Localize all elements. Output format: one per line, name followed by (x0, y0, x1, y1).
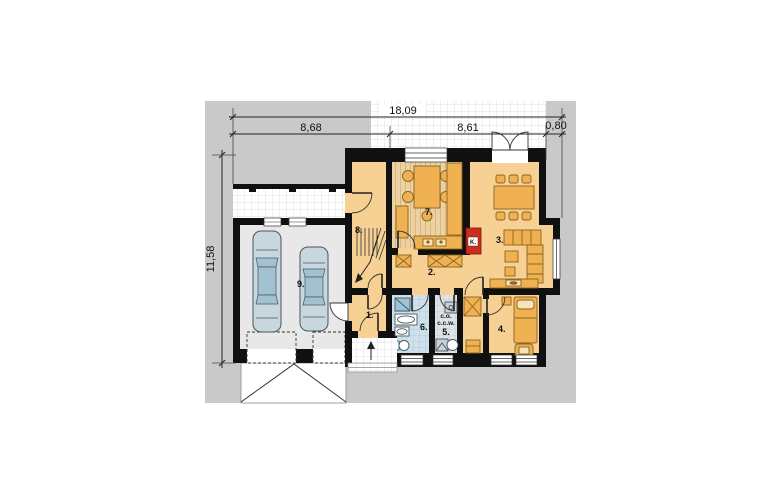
boiler-label-co: c.o. (440, 313, 451, 320)
terrace-post (249, 184, 256, 192)
bedroom-window (516, 355, 537, 365)
room-label-kitchen: 7. (425, 207, 433, 217)
dining-chair (496, 212, 505, 220)
terrace-post (289, 184, 296, 192)
dim-bay-section: 0,80 (545, 120, 566, 132)
room-label-hall: 1. (366, 310, 374, 320)
car (253, 231, 281, 332)
kitchen-furniture (396, 163, 462, 249)
room-label-bathroom: 6. (420, 322, 428, 332)
dining-table (494, 186, 534, 209)
fireplace-label: K. (470, 240, 476, 246)
dining-chair (522, 212, 531, 220)
driveway (241, 360, 346, 403)
toilet (399, 341, 409, 351)
coffee-table (505, 251, 518, 262)
pouf (505, 267, 515, 276)
room-label-stairs: 8. (355, 225, 363, 235)
room-label-living: 3. (496, 235, 504, 245)
room-label-boiler: 5. (442, 327, 450, 337)
dining-chair (509, 212, 518, 220)
floor-plan-svg: 9. (0, 0, 780, 503)
fireplace: K. (466, 228, 481, 254)
car (300, 247, 328, 331)
dining-chair (509, 175, 518, 183)
dim-side-height: 11,58 (205, 246, 217, 273)
boiler-label-ccw: c.c.w. (437, 320, 455, 327)
kitchen-counter-tall (447, 163, 462, 235)
room-label-garage: 9. (297, 279, 305, 289)
kitchen-table (414, 166, 440, 208)
floor-plan-page: 9. (0, 0, 780, 503)
bathroom-window (401, 355, 423, 365)
dining-chair (496, 175, 505, 183)
terrace-post (329, 184, 336, 192)
garage-door-opening (313, 349, 345, 363)
dim-total-width: 18,09 (389, 105, 417, 117)
dining-chair (522, 175, 531, 183)
house: K. (330, 132, 560, 367)
room-label-bedroom: 4. (498, 324, 506, 334)
room-label-hallway: 2. (428, 267, 436, 277)
kitchen-chair (403, 171, 414, 182)
entrance-porch (348, 338, 397, 372)
boiler-window (433, 355, 453, 365)
boiler-unit (445, 302, 457, 313)
garage: 9. (233, 218, 352, 363)
dim-left-section: 8,68 (300, 122, 321, 134)
kitchen-chair (403, 192, 414, 203)
dim-house-section: 8,61 (457, 122, 478, 134)
kitchen-window (405, 148, 447, 162)
garage-door-opening (247, 349, 296, 363)
bedroom-window (491, 355, 512, 365)
sofa (504, 230, 541, 245)
water-heater (447, 340, 458, 351)
